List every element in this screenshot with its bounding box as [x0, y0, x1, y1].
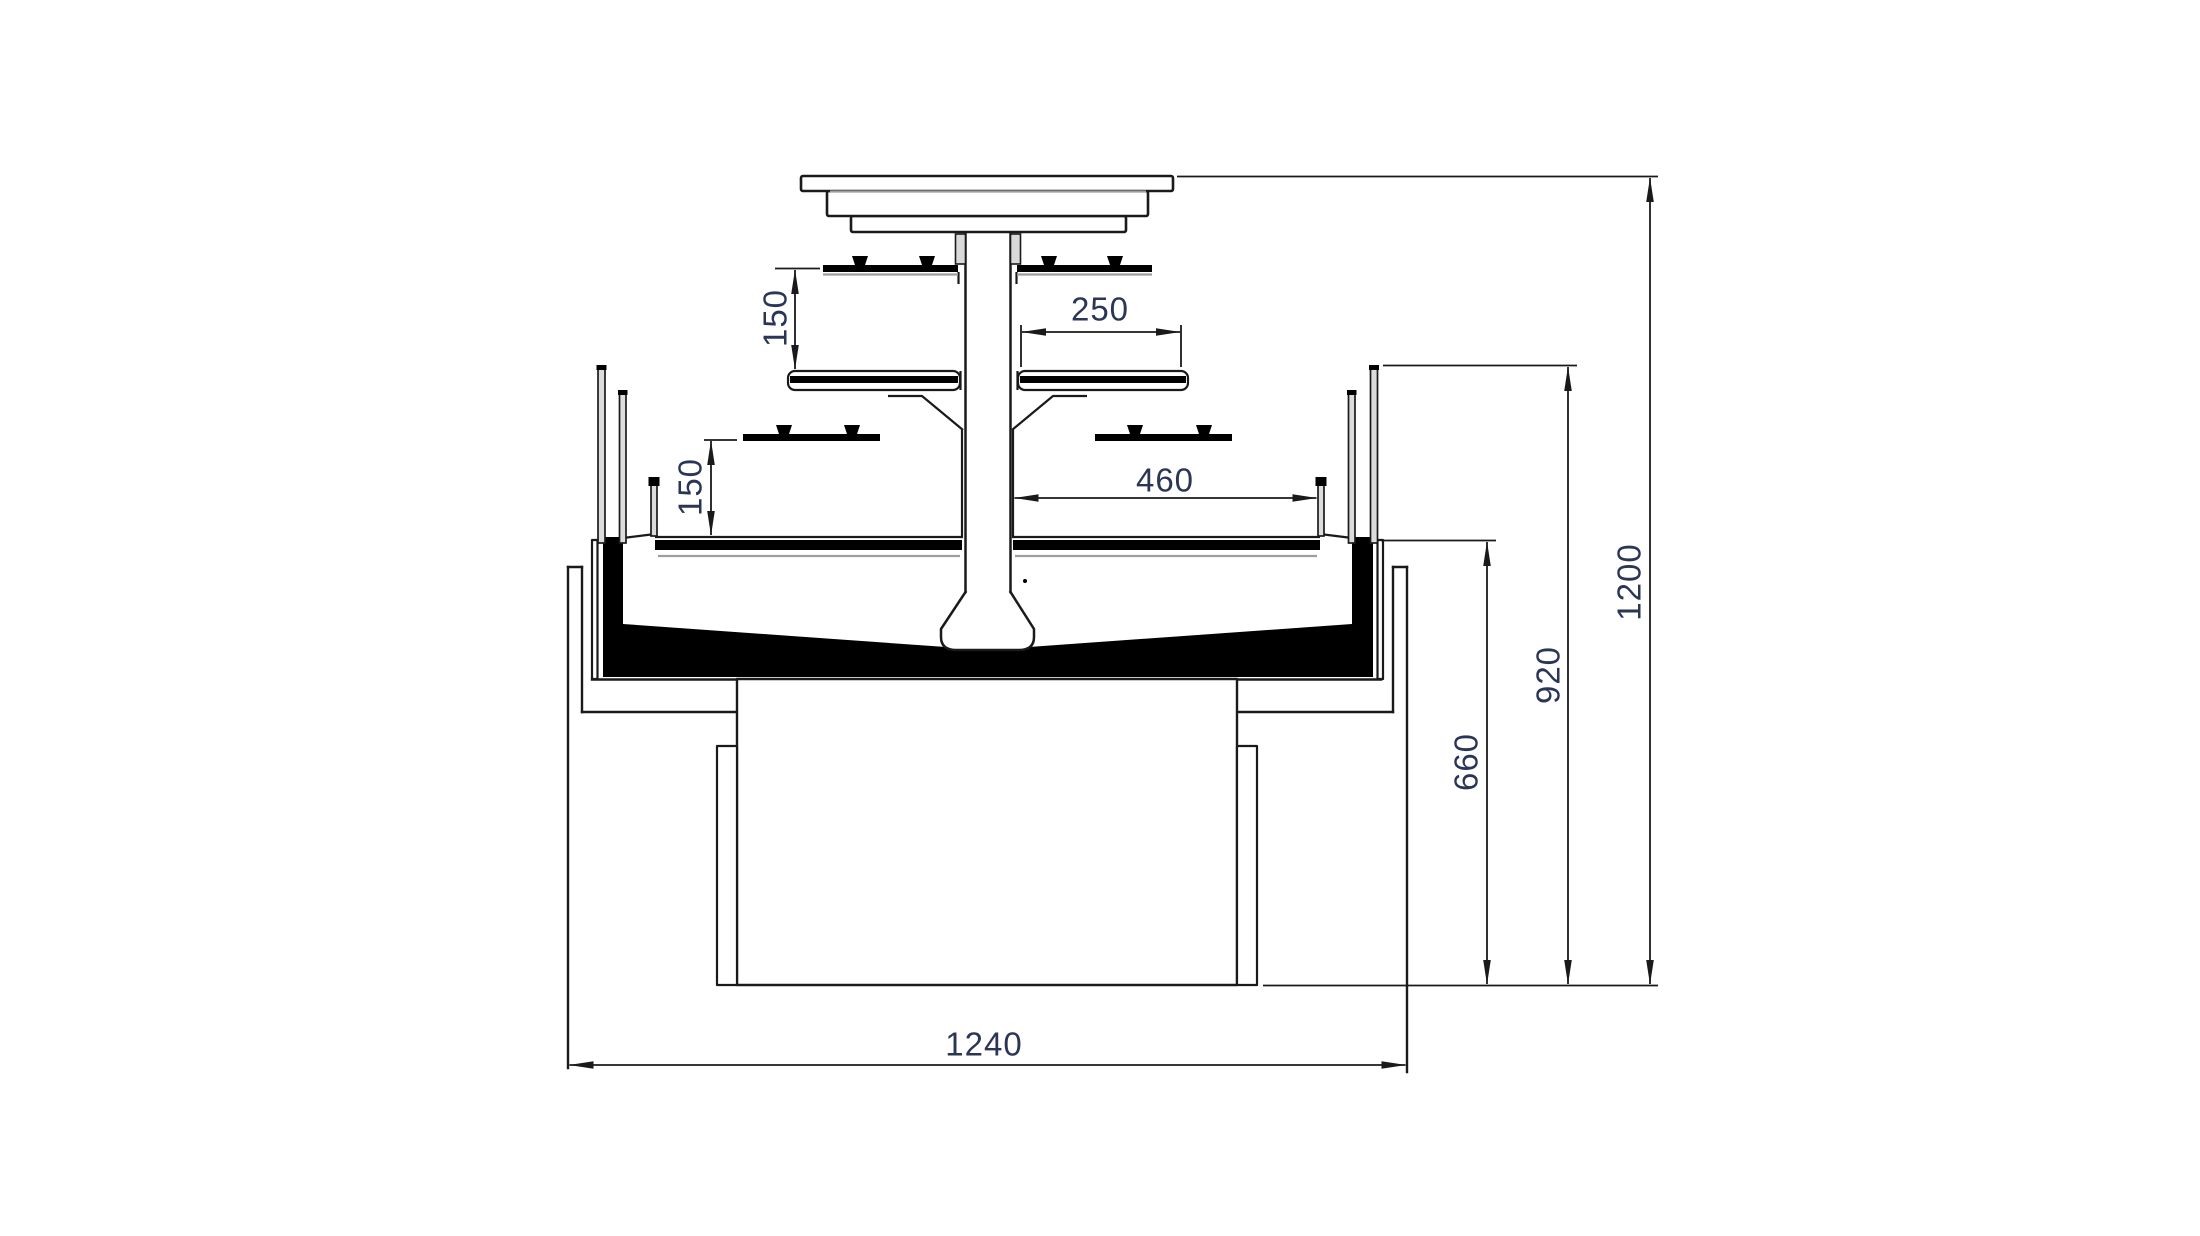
lower-shelf-right: [1095, 434, 1232, 441]
deck-left-band: [655, 540, 962, 550]
side-glass-right-short: [1349, 393, 1356, 543]
side-glass-left-short: [620, 393, 627, 543]
shelf-clip: [844, 425, 860, 434]
canopy-lower-tier: [851, 216, 1126, 232]
plinth-kick-right: [1237, 746, 1257, 985]
upper-shelf-left: [823, 265, 958, 272]
dim-label-deck-floor-height: 660: [1448, 733, 1485, 791]
lower-shelf-left: [743, 434, 880, 441]
canopy-top-board: [801, 176, 1173, 191]
dim-label-overall-height: 1200: [1611, 543, 1648, 620]
shelf-clip: [1041, 256, 1057, 265]
glass-cap: [1347, 390, 1357, 395]
column-foot-fill: [941, 592, 1034, 650]
column-hanger-left: [956, 234, 966, 264]
deck-right-band: [1013, 540, 1320, 550]
divider-cap: [1316, 477, 1327, 486]
glass-cap: [1369, 365, 1379, 370]
side-glass-left-tall: [598, 368, 605, 543]
well-wall-left: [592, 540, 598, 679]
shelf-clip: [1196, 425, 1212, 434]
well-wall-right: [1378, 540, 1384, 679]
drawing-speck: [1023, 579, 1027, 583]
shelf-clip: [1127, 425, 1143, 434]
shelf-clip: [852, 256, 868, 265]
mid-shelf-left-band: [790, 376, 958, 383]
deck-divider-left: [651, 485, 657, 536]
dim-label-upper-shelf-depth: 250: [1071, 291, 1129, 328]
dim-label-overall-width: 1240: [945, 1026, 1022, 1063]
glass-cap: [597, 365, 607, 370]
cross-section-drawing: 150 250 150 460 1240 660 920 1200: [0, 0, 2200, 1236]
mid-shelf-left-bracket: [888, 396, 963, 430]
mid-shelf-right-bracket: [1012, 396, 1087, 430]
plinth-kick-left: [717, 746, 737, 985]
deck-divider-right: [1318, 485, 1324, 536]
shelf-clip: [1107, 256, 1123, 265]
shelf-clip: [776, 425, 792, 434]
drawing-canvas: 150 250 150 460 1240 660 920 1200: [0, 0, 2200, 1236]
column-hanger-right: [1011, 234, 1021, 264]
side-glass-right-tall: [1371, 368, 1378, 543]
dim-label-side-glass-height: 920: [1530, 646, 1567, 704]
dim-label-base-deck-depth: 460: [1136, 462, 1194, 499]
canopy-middle-tier: [827, 191, 1148, 216]
glass-cap: [618, 390, 628, 395]
upper-shelf-right: [1017, 265, 1152, 272]
mid-shelf-right-band: [1020, 376, 1186, 383]
shelf-clip: [919, 256, 935, 265]
plinth-box: [737, 679, 1237, 985]
divider-cap: [649, 477, 660, 486]
dim-label-upper-shelf-gap: 150: [757, 289, 794, 347]
center-column-body: [966, 230, 1011, 592]
dim-label-lower-shelf-gap: 150: [672, 458, 709, 516]
